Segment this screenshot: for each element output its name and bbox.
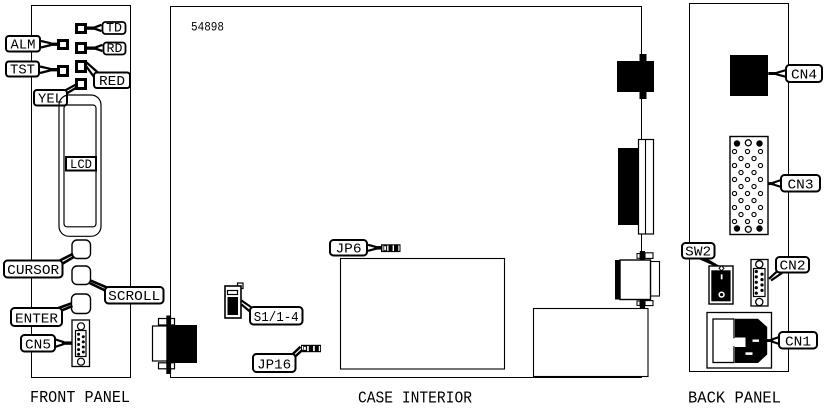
svg-text:CN1: CN1: [785, 335, 811, 350]
svg-text:RD: RD: [107, 41, 123, 56]
svg-text:CN3: CN3: [788, 178, 814, 193]
svg-text:SW2: SW2: [685, 246, 711, 261]
svg-text:54898: 54898: [191, 20, 224, 35]
svg-text:CN5: CN5: [25, 338, 51, 353]
svg-text:CN4: CN4: [791, 69, 817, 84]
svg-text:JP16: JP16: [257, 359, 291, 374]
svg-text:FRONT PANEL: FRONT PANEL: [30, 388, 130, 407]
svg-text:CURSOR: CURSOR: [7, 264, 59, 279]
svg-text:LCD: LCD: [70, 158, 92, 172]
svg-text:CASE INTERIOR: CASE INTERIOR: [358, 389, 472, 408]
svg-text:BACK PANEL: BACK PANEL: [688, 389, 781, 408]
svg-text:S1/1-4: S1/1-4: [254, 311, 299, 326]
svg-text:CN2: CN2: [780, 260, 806, 275]
svg-text:ENTER: ENTER: [15, 313, 58, 328]
svg-text:ALM: ALM: [11, 39, 36, 54]
svg-text:JP6: JP6: [336, 243, 362, 258]
svg-text:TD: TD: [106, 21, 122, 36]
svg-text:SCROLL: SCROLL: [108, 290, 160, 305]
svg-text:RED: RED: [99, 75, 125, 90]
svg-text:TST: TST: [10, 64, 35, 79]
